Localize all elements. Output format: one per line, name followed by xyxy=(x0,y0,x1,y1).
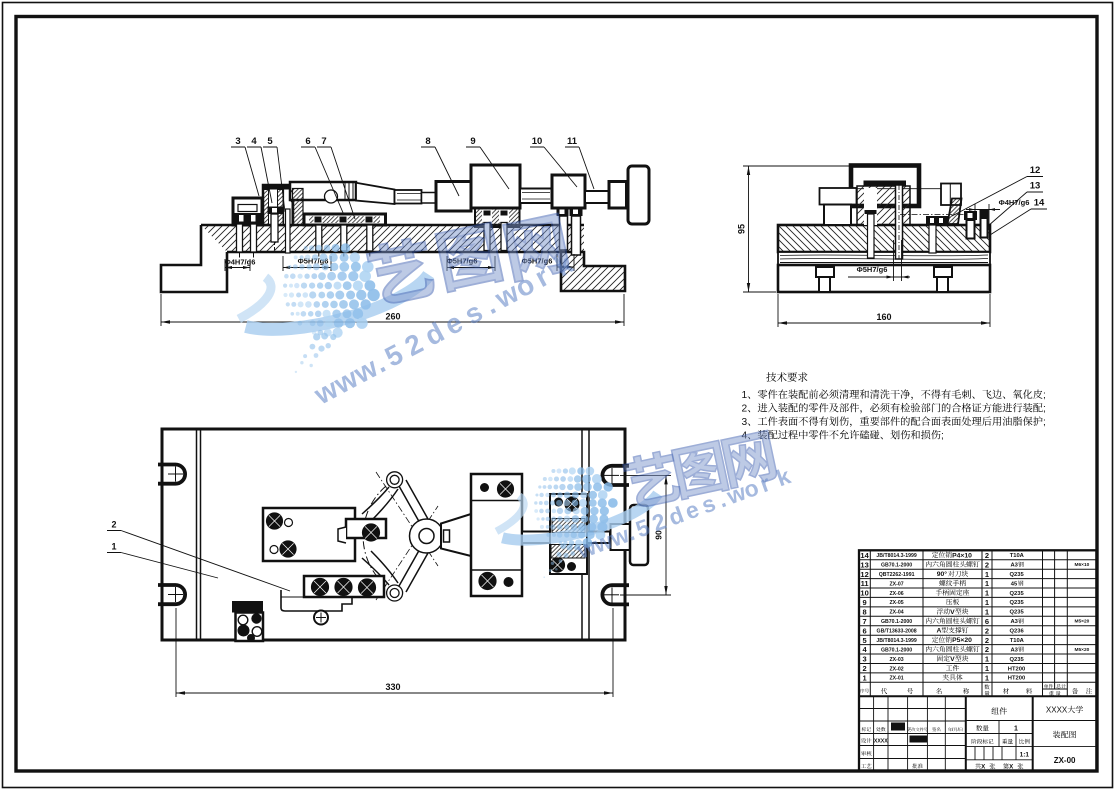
svg-text:3: 3 xyxy=(742,417,748,428)
svg-text:2: 2 xyxy=(985,551,989,560)
svg-text:6: 6 xyxy=(305,136,310,147)
svg-text:11: 11 xyxy=(861,579,869,588)
svg-text:JB/T8014.3-1999: JB/T8014.3-1999 xyxy=(876,638,916,644)
svg-text:2: 2 xyxy=(985,636,989,645)
svg-text:9: 9 xyxy=(470,136,475,147)
svg-text:8: 8 xyxy=(425,136,430,147)
svg-text:4: 4 xyxy=(251,136,257,147)
svg-text:GB/T13633-2008: GB/T13633-2008 xyxy=(877,629,917,635)
svg-text:1: 1 xyxy=(985,674,989,683)
svg-text:A3: A3 xyxy=(1011,619,1019,625)
svg-text:2: 2 xyxy=(111,520,116,530)
svg-text:8: 8 xyxy=(863,608,867,617)
svg-text:T10A: T10A xyxy=(1010,638,1025,644)
svg-text:1: 1 xyxy=(985,664,989,673)
svg-text:260: 260 xyxy=(385,312,400,322)
svg-text:Q236: Q236 xyxy=(1010,629,1025,635)
svg-text:12: 12 xyxy=(860,570,868,579)
svg-text:;: ; xyxy=(1043,417,1046,428)
svg-text:7: 7 xyxy=(321,136,326,147)
svg-text:JB/T8014.3-1999: JB/T8014.3-1999 xyxy=(876,553,916,559)
svg-text:45: 45 xyxy=(1011,581,1018,587)
svg-text:9: 9 xyxy=(863,598,867,607)
svg-text:1: 1 xyxy=(985,589,989,598)
svg-text:5: 5 xyxy=(267,136,273,147)
svg-text:10: 10 xyxy=(860,589,868,598)
svg-text:Φ4H7/g6: Φ4H7/g6 xyxy=(999,198,1030,207)
svg-text:T10A: T10A xyxy=(1010,553,1025,559)
svg-text:XXXX: XXXX xyxy=(1046,706,1068,715)
svg-text:XXXX: XXXX xyxy=(874,739,888,745)
svg-text:1: 1 xyxy=(111,542,116,552)
svg-text:ZX-02: ZX-02 xyxy=(890,666,904,672)
svg-text:A3: A3 xyxy=(1011,563,1019,569)
svg-text:1: 1 xyxy=(863,674,867,683)
svg-text:2: 2 xyxy=(985,560,989,569)
svg-text:3: 3 xyxy=(235,136,240,147)
svg-text:3: 3 xyxy=(863,655,867,664)
svg-text:6: 6 xyxy=(985,617,989,626)
svg-text:13: 13 xyxy=(1030,181,1041,192)
svg-text:ZX-06: ZX-06 xyxy=(890,591,904,597)
svg-text:;: ; xyxy=(1043,390,1046,401)
svg-text:2: 2 xyxy=(985,626,989,635)
svg-text:1: 1 xyxy=(1014,726,1018,733)
svg-text:Q235: Q235 xyxy=(1010,610,1025,616)
svg-text:90°: 90° xyxy=(937,570,948,578)
svg-text:2: 2 xyxy=(985,645,989,654)
svg-text:ZX-03: ZX-03 xyxy=(890,657,904,663)
svg-text:Q235: Q235 xyxy=(1010,591,1025,597)
svg-text:M6×10: M6×10 xyxy=(1074,562,1089,568)
svg-text:Q235: Q235 xyxy=(1010,600,1025,606)
svg-text:1: 1 xyxy=(985,570,989,579)
svg-text:V: V xyxy=(950,656,955,663)
svg-text:Φ5H7/g6: Φ5H7/g6 xyxy=(857,265,888,274)
svg-text:5: 5 xyxy=(863,636,867,645)
svg-text:2: 2 xyxy=(742,404,748,415)
svg-text:A: A xyxy=(937,628,942,635)
svg-text:Q235: Q235 xyxy=(1010,657,1025,663)
svg-text:ZX-00: ZX-00 xyxy=(1054,756,1076,765)
svg-text:ZX-07: ZX-07 xyxy=(890,581,904,587)
svg-text:P5×20: P5×20 xyxy=(952,637,972,644)
svg-text:GB70.1-2000: GB70.1-2000 xyxy=(881,619,912,625)
svg-text:;: ; xyxy=(941,431,944,442)
svg-text:;: ; xyxy=(1043,404,1046,415)
svg-text:14: 14 xyxy=(1034,198,1045,209)
svg-text:GB70.1-2000: GB70.1-2000 xyxy=(881,563,912,569)
svg-text:HT200: HT200 xyxy=(1008,676,1025,682)
svg-text:160: 160 xyxy=(876,312,891,322)
svg-text:10: 10 xyxy=(532,136,543,147)
svg-text:13: 13 xyxy=(860,560,868,569)
svg-text:Φ4H7/g6: Φ4H7/g6 xyxy=(225,258,256,267)
svg-text:ZX-05: ZX-05 xyxy=(890,600,904,606)
svg-text:1: 1 xyxy=(985,655,989,664)
svg-text:M5×20: M5×20 xyxy=(1074,647,1089,653)
svg-text:P4×10: P4×10 xyxy=(952,552,972,559)
svg-text:1: 1 xyxy=(985,608,989,617)
svg-text:QBT2262-1991: QBT2262-1991 xyxy=(879,572,915,578)
svg-text:330: 330 xyxy=(385,682,400,692)
svg-text:1: 1 xyxy=(985,598,989,607)
svg-text:V: V xyxy=(950,609,955,616)
svg-text:HT200: HT200 xyxy=(1008,666,1025,672)
svg-text:A3: A3 xyxy=(1011,647,1019,653)
svg-text:1:1: 1:1 xyxy=(1020,752,1030,759)
svg-text:11: 11 xyxy=(567,136,578,147)
svg-text:GB70.1-2000: GB70.1-2000 xyxy=(881,647,912,653)
svg-text:ZX-01: ZX-01 xyxy=(890,676,904,682)
svg-text:7: 7 xyxy=(863,617,867,626)
svg-text:ZX-04: ZX-04 xyxy=(890,610,904,616)
svg-text:95: 95 xyxy=(737,224,747,234)
svg-text:6: 6 xyxy=(863,626,867,635)
svg-text:M5×20: M5×20 xyxy=(1074,619,1089,625)
svg-text:1: 1 xyxy=(742,390,748,401)
svg-text:1: 1 xyxy=(985,579,989,588)
svg-text:12: 12 xyxy=(1030,165,1041,176)
svg-text:Q235: Q235 xyxy=(1010,572,1025,578)
svg-text:2: 2 xyxy=(863,664,867,673)
svg-text:14: 14 xyxy=(860,551,869,560)
